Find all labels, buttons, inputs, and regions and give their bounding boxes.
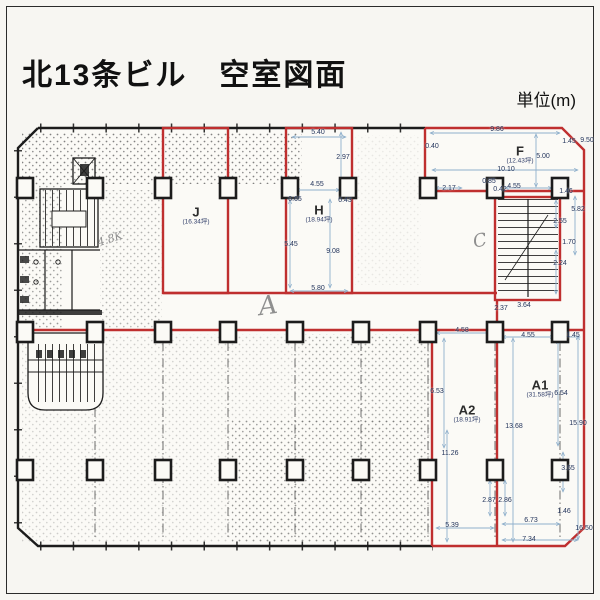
dimension-label: 4.55 bbox=[310, 181, 324, 189]
column bbox=[87, 178, 103, 198]
dimension-label: 1.45 bbox=[566, 332, 580, 340]
column bbox=[220, 322, 236, 342]
column bbox=[282, 178, 298, 198]
dimension-label: 4.55 bbox=[521, 332, 535, 340]
dimension-label: 2.86 bbox=[498, 497, 512, 505]
column bbox=[87, 460, 103, 480]
floorplan-drawing bbox=[0, 0, 600, 600]
dimension-label: 2.17 bbox=[442, 185, 456, 193]
room-label-A1: A1(31.58坪) bbox=[526, 378, 553, 399]
dimension-label: 1.46 bbox=[559, 188, 573, 196]
column bbox=[220, 178, 236, 198]
column bbox=[340, 178, 356, 198]
dimension-label: 0.42 bbox=[493, 186, 507, 194]
dimension-label: 5.82 bbox=[571, 206, 585, 214]
toilet-fixture bbox=[20, 256, 29, 263]
room-area-tsubo: (18.91坪) bbox=[453, 416, 480, 424]
floorplan-page: 北13条ビル 空室図面 単位(m) bbox=[0, 0, 600, 600]
dimension-label: 0.85 bbox=[482, 178, 496, 186]
dimension-label: 9.86 bbox=[490, 126, 504, 134]
column bbox=[487, 460, 503, 480]
room-label-J: J(16.34坪) bbox=[182, 205, 209, 226]
dimension-label: 5.80 bbox=[311, 285, 325, 293]
dimension-label: 6.53 bbox=[430, 388, 444, 396]
dimension-label: 0.43 bbox=[338, 197, 352, 205]
dimension-label: 0.65 bbox=[288, 196, 302, 204]
dimension-label: 4.55 bbox=[507, 183, 521, 191]
dimension-label: 4.58 bbox=[455, 327, 469, 335]
stairwell-c bbox=[498, 199, 558, 297]
column bbox=[420, 178, 436, 198]
room-label-A2: A2(18.91坪) bbox=[453, 403, 480, 424]
dimension-label: 2.37 bbox=[494, 305, 508, 313]
column bbox=[353, 322, 369, 342]
room-id: A1 bbox=[526, 378, 553, 391]
dimension-label: 2.55 bbox=[553, 218, 567, 226]
dimension-label: 2.24 bbox=[553, 260, 567, 268]
column bbox=[17, 460, 33, 480]
column bbox=[353, 460, 369, 480]
dimension-label: 5.00 bbox=[536, 153, 550, 161]
column bbox=[287, 460, 303, 480]
column bbox=[17, 322, 33, 342]
dimension-label: 5.45 bbox=[284, 241, 298, 249]
column bbox=[155, 178, 171, 198]
pencil-annotation: A bbox=[257, 290, 280, 322]
room-label-H: H(18.94坪) bbox=[305, 203, 332, 224]
service-core-lower bbox=[28, 333, 103, 410]
dimension-label: 13.68 bbox=[505, 423, 523, 431]
column bbox=[420, 460, 436, 480]
dimension-label: 16.50 bbox=[575, 525, 593, 533]
room-id: J bbox=[182, 205, 209, 218]
dimension-label: 9.50 bbox=[580, 137, 594, 145]
dimension-label: 7.34 bbox=[522, 536, 536, 544]
dimension-label: 6.73 bbox=[524, 517, 538, 525]
room-id: F bbox=[506, 144, 533, 157]
column bbox=[487, 322, 503, 342]
dimension-label: 0.40 bbox=[425, 143, 439, 151]
dimension-label: 10.10 bbox=[497, 166, 515, 174]
dimension-label: 5.39 bbox=[445, 522, 459, 530]
dimension-label: 9.08 bbox=[326, 248, 340, 256]
dimension-label: 2.87 bbox=[482, 497, 496, 505]
column bbox=[220, 460, 236, 480]
dimension-label: 3.64 bbox=[517, 302, 531, 310]
room-id: H bbox=[305, 203, 332, 216]
dimension-label: 1.70 bbox=[562, 239, 576, 247]
room-area-tsubo: (12.43坪) bbox=[506, 157, 533, 165]
column bbox=[287, 322, 303, 342]
dimension-label: 6.54 bbox=[554, 390, 568, 398]
room-area-tsubo: (16.34坪) bbox=[182, 218, 209, 226]
dimension-label: 11.26 bbox=[442, 450, 459, 458]
toilet-fixture bbox=[20, 276, 29, 283]
room-area-tsubo: (18.94坪) bbox=[305, 216, 332, 224]
room-area-tsubo: (31.58坪) bbox=[526, 391, 553, 399]
floorplan: 9.861.459.500.405.0010.100.852.170.424.5… bbox=[0, 0, 600, 600]
dimension-label: 15.90 bbox=[569, 420, 587, 428]
dimension-label: 5.40 bbox=[311, 129, 325, 137]
column bbox=[87, 322, 103, 342]
column bbox=[155, 322, 171, 342]
toilet-fixture bbox=[20, 296, 29, 303]
dimension-label: 3.65 bbox=[561, 465, 575, 473]
column bbox=[420, 322, 436, 342]
room-label-F: F(12.43坪) bbox=[506, 144, 533, 165]
dimension-label: 2.97 bbox=[336, 154, 350, 162]
dimension-label: 1.45 bbox=[562, 138, 576, 146]
column bbox=[155, 460, 171, 480]
column bbox=[17, 178, 33, 198]
dimension-label: 1.46 bbox=[557, 508, 571, 516]
room-id: A2 bbox=[453, 403, 480, 416]
